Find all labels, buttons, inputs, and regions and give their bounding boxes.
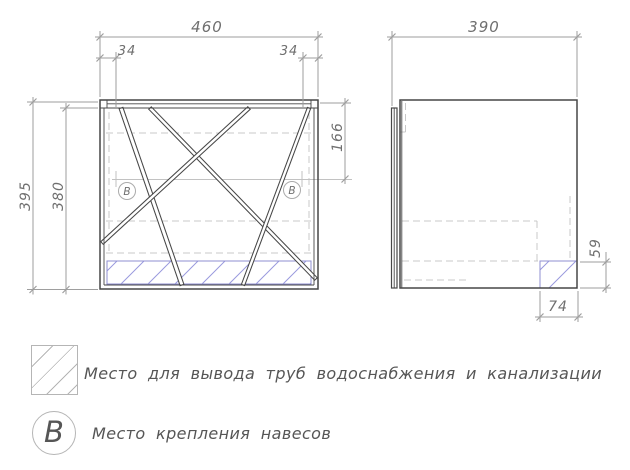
pipe-zone-hatch-swatch <box>31 345 78 395</box>
dim-pipe-zone-width: 74 <box>548 299 568 315</box>
hanger-legend-label: Место крепления навесов <box>92 424 331 443</box>
front-pipe-zone-hatch <box>107 261 311 284</box>
side-hidden-edges <box>400 103 570 280</box>
brace-diagonal-bl-tr <box>101 107 250 245</box>
hanger-marker-symbol-letter: B <box>44 415 64 449</box>
dim-brace-offset-right: 34 <box>280 44 299 59</box>
dim-outer-height: 395 <box>18 181 34 211</box>
side-pipe-zone-hatch <box>540 261 577 288</box>
hanger-marker-symbol: B <box>32 411 76 455</box>
side-view: 390 59 74 <box>387 18 611 322</box>
front-view: B B 460 34 34 <box>18 18 352 295</box>
dim-inner-height: 380 <box>51 181 67 211</box>
pipe-zone-legend-label: Место для вывода труб водоснабжения и ка… <box>84 364 602 383</box>
dim-overall-width: 460 <box>191 18 223 36</box>
dim-hanger-drop: 166 <box>330 122 346 152</box>
brace-right <box>241 107 310 285</box>
dim-pipe-zone-height: 59 <box>588 238 604 258</box>
hanger-marker-right-label: B <box>288 185 295 197</box>
dim-depth: 390 <box>468 18 500 36</box>
dim-brace-offset-left: 34 <box>118 44 137 59</box>
technical-drawing-page: B B 460 34 34 <box>0 0 630 470</box>
hanger-marker-left-label: B <box>123 186 130 198</box>
side-carcass <box>392 100 578 288</box>
cabinet-drawing: B B 460 34 34 <box>0 0 630 470</box>
